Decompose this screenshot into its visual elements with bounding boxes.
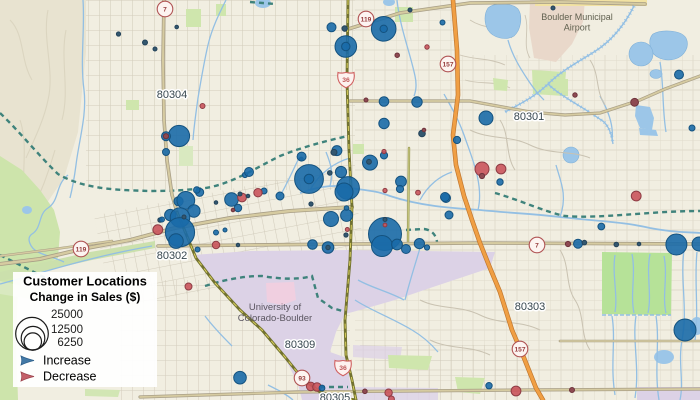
svg-text:Customer Locations: Customer Locations — [23, 274, 147, 289]
svg-text:25000: 25000 — [51, 309, 83, 321]
svg-text:6250: 6250 — [57, 337, 83, 349]
svg-text:119: 119 — [361, 17, 372, 24]
svg-text:80302: 80302 — [157, 250, 188, 262]
svg-text:80303: 80303 — [515, 301, 546, 313]
svg-text:80305: 80305 — [320, 392, 351, 400]
svg-text:Decrease: Decrease — [43, 370, 97, 384]
svg-text:93: 93 — [298, 376, 306, 383]
svg-text:University of: University of — [249, 302, 302, 313]
svg-text:80301: 80301 — [514, 111, 545, 123]
svg-text:157: 157 — [514, 347, 525, 354]
svg-text:7: 7 — [163, 7, 167, 14]
svg-text:Airport: Airport — [564, 23, 591, 33]
svg-text:Boulder Municipal: Boulder Municipal — [541, 12, 613, 22]
svg-text:Colorado-Boulder: Colorado-Boulder — [238, 313, 312, 324]
svg-text:36: 36 — [342, 77, 350, 84]
svg-text:Increase: Increase — [43, 354, 91, 368]
svg-text:12500: 12500 — [51, 324, 83, 336]
svg-text:157: 157 — [442, 62, 453, 69]
svg-text:80304: 80304 — [157, 89, 188, 101]
svg-text:Change in Sales ($): Change in Sales ($) — [30, 290, 141, 304]
svg-text:7: 7 — [535, 243, 539, 250]
svg-text:119: 119 — [76, 247, 87, 254]
svg-text:36: 36 — [339, 365, 347, 372]
svg-text:80309: 80309 — [285, 339, 316, 351]
